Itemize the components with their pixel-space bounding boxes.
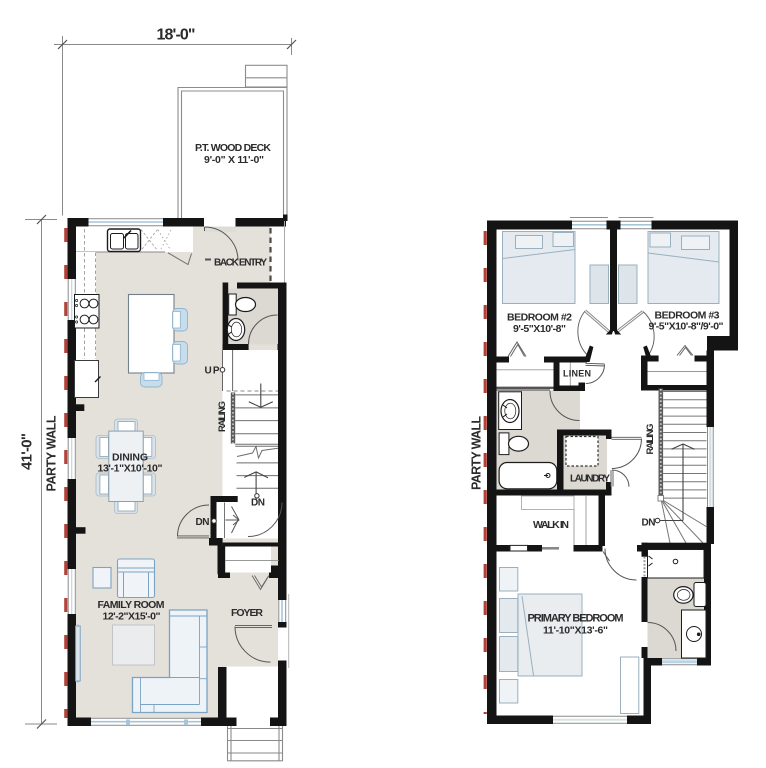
svg-text:DN: DN: [196, 517, 210, 528]
svg-text:FAMILY ROOM: FAMILY ROOM: [98, 599, 165, 611]
svg-text:FOYER: FOYER: [231, 607, 263, 619]
svg-text:PARTY WALL: PARTY WALL: [45, 415, 59, 491]
svg-text:DN: DN: [642, 518, 656, 529]
svg-text:PARTY WALL: PARTY WALL: [470, 416, 484, 490]
svg-text:LINEN: LINEN: [563, 369, 591, 379]
svg-text:RAILING: RAILING: [217, 401, 228, 432]
svg-text:13'-1"X10'-10": 13'-1"X10'-10": [98, 463, 163, 475]
svg-text:UP: UP: [205, 366, 220, 377]
svg-text:PRIMARY BEDROOM: PRIMARY BEDROOM: [528, 613, 624, 625]
svg-text:9'-0" X 11'-0": 9'-0" X 11'-0": [204, 154, 264, 166]
svg-text:41'-0": 41'-0": [19, 433, 36, 470]
svg-text:9'-5"X10'-8"/9'-0": 9'-5"X10'-8"/9'-0": [649, 321, 724, 333]
svg-text:RAILING: RAILING: [645, 424, 656, 455]
svg-text:BEDROOM #2: BEDROOM #2: [507, 312, 572, 324]
svg-text:11'-10"X13'-6": 11'-10"X13'-6": [543, 625, 608, 637]
svg-text:12'-2"X15'-0": 12'-2"X15'-0": [103, 611, 161, 623]
svg-text:P.T. WOOD DECK: P.T. WOOD DECK: [195, 142, 271, 154]
svg-text:LAUNDRY: LAUNDRY: [570, 474, 610, 485]
svg-text:9'-5"X10'-8": 9'-5"X10'-8": [513, 323, 566, 335]
svg-text:BACK ENTRY: BACK ENTRY: [214, 258, 267, 269]
svg-text:18'-0": 18'-0": [157, 27, 196, 44]
svg-text:DN: DN: [251, 498, 265, 509]
svg-text:WALK IN: WALK IN: [533, 519, 569, 531]
